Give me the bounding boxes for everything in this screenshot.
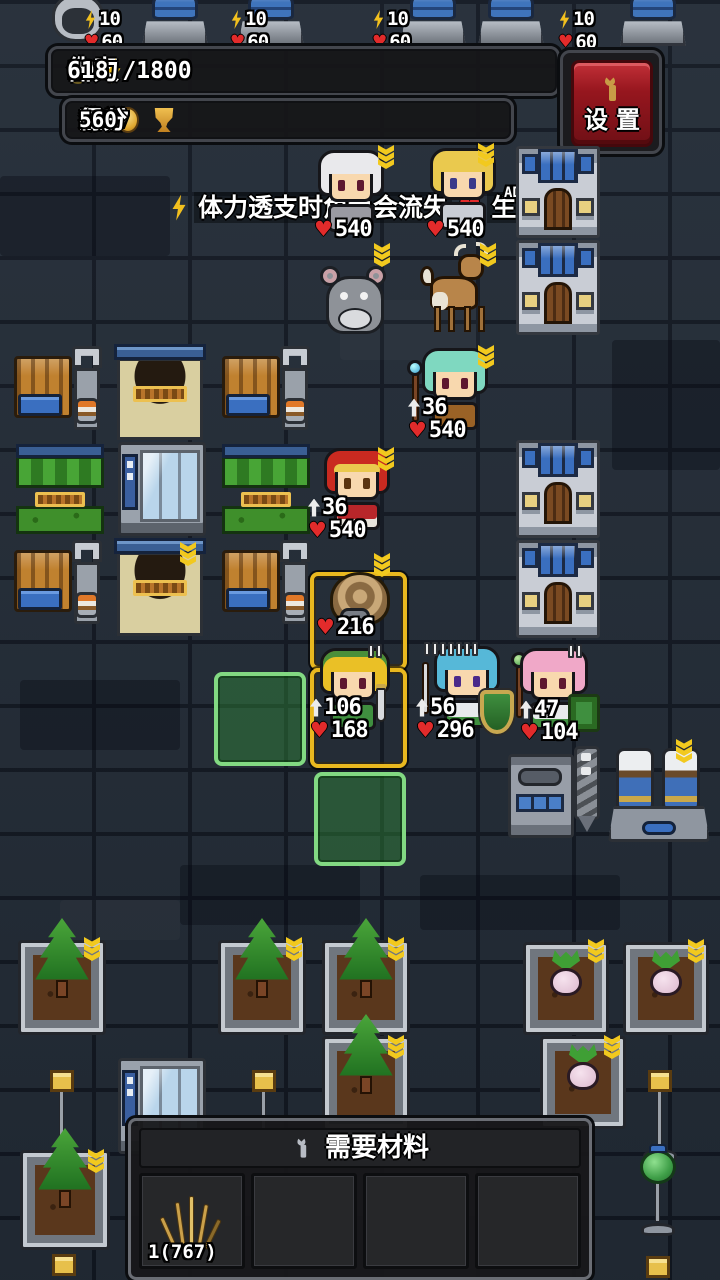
- disc-stack: [283, 398, 307, 424]
- upgrade-chevron-icon: [286, 940, 302, 961]
- trunk: [256, 980, 268, 998]
- leg: [464, 306, 471, 332]
- building-house[interactable]: [516, 440, 600, 538]
- disc-stack: [283, 592, 307, 618]
- brick-light: [60, 900, 180, 940]
- settings-frame: 设置: [560, 50, 662, 154]
- turret-dome: [488, 0, 534, 20]
- attack-icon: [308, 499, 320, 517]
- trunk: [56, 980, 68, 998]
- attack-icon: [416, 699, 428, 717]
- trunk: [360, 980, 372, 998]
- tarp: [18, 588, 62, 610]
- building-house[interactable]: [516, 240, 600, 335]
- claw-machine-head: [72, 346, 102, 368]
- heart-icon: ♥: [316, 617, 335, 638]
- heart-icon: ♥: [426, 219, 445, 240]
- lamp-head: [646, 1256, 670, 1278]
- drill-tip: [578, 816, 596, 832]
- turret-base: [142, 18, 208, 46]
- power-icon: [230, 10, 243, 29]
- settings-button[interactable]: 设置: [571, 60, 653, 147]
- building-house[interactable]: [516, 146, 600, 238]
- wrench-icon: [600, 76, 624, 102]
- door: [544, 482, 572, 524]
- leg: [434, 306, 441, 332]
- building-turret[interactable]: [478, 0, 544, 46]
- tavern-sign: [133, 386, 187, 402]
- arrows-indicator: [424, 642, 478, 656]
- grass-base: [222, 506, 310, 534]
- window: [578, 154, 594, 174]
- upgrade-chevron-icon: [688, 942, 704, 963]
- lit-window: [522, 198, 540, 216]
- grass-base: [16, 506, 104, 534]
- power-icon: [84, 10, 97, 29]
- lamp-head: [252, 1070, 276, 1092]
- tarp: [226, 588, 270, 610]
- lit-window: [576, 292, 594, 310]
- brick-shade: [20, 680, 180, 750]
- lamp-pole: [655, 1178, 660, 1222]
- windows: [516, 794, 564, 812]
- lamp-pole: [657, 1088, 662, 1146]
- tavern-roof: [114, 344, 206, 360]
- material-slot[interactable]: 1(767): [139, 1173, 245, 1269]
- green-lamp-ball: [640, 1150, 676, 1184]
- heart-icon: ♥: [314, 219, 333, 240]
- window: [522, 448, 538, 468]
- lit-window: [576, 198, 594, 216]
- building-green-shop[interactable]: [222, 444, 310, 534]
- roof-bar: [16, 444, 104, 458]
- wrench-icon: [293, 1138, 312, 1159]
- upgrade-chevron-icon: [378, 450, 394, 471]
- lamp-base: [641, 1223, 675, 1236]
- materials-panel-title: 需要材料: [325, 1135, 429, 1161]
- upgrade-chevron-icon: [588, 942, 604, 963]
- heart-icon: ♥: [310, 720, 329, 741]
- face: [441, 172, 485, 200]
- building-chest-shop[interactable]: [222, 346, 312, 438]
- face: [329, 174, 373, 202]
- game-viewport: 10 ♥60 10 ♥60 10 ♥60 10 ♥60 白天 196 / 800…: [0, 0, 720, 1280]
- window: [522, 248, 538, 268]
- score-icon: [153, 108, 175, 132]
- brick-shade: [180, 865, 360, 925]
- tavern-sign: [133, 580, 187, 596]
- building-tavern[interactable]: [114, 344, 206, 440]
- hud-score-bar: 荣誉 322 金币 1277 得分 560: [62, 98, 514, 142]
- heart-icon: ♥: [416, 720, 435, 741]
- upgrade-chevron-icon: [478, 348, 494, 369]
- power-icon: [558, 10, 571, 29]
- stamina-bolt-icon: [170, 195, 188, 221]
- upgrade-chevron-icon: [374, 246, 390, 267]
- unit-stats: 106 ♥168: [310, 696, 368, 742]
- eye: [340, 292, 348, 300]
- claw-machine-head: [280, 540, 310, 562]
- turnip: [650, 968, 682, 996]
- turret-stats: 10 ♥60: [558, 8, 596, 54]
- turnip: [567, 1062, 599, 1090]
- claw-machine-head: [72, 540, 102, 562]
- claw-machine-head: [280, 346, 310, 368]
- hatch: [518, 768, 562, 786]
- unit-stats: ♥540: [314, 218, 372, 241]
- upgrade-chevron-icon: [88, 1152, 104, 1173]
- heart-icon: ♥: [558, 34, 573, 51]
- arrows-indicator: [368, 644, 382, 658]
- trunk: [59, 1190, 71, 1208]
- unit-stats: 36 ♥540: [408, 396, 466, 442]
- attack-icon: [520, 701, 532, 719]
- attack-icon: [408, 399, 420, 417]
- belly: [338, 308, 372, 330]
- upgrade-chevron-icon: [388, 1038, 404, 1059]
- turnip: [550, 968, 582, 996]
- unit-stats: ♥216: [316, 616, 374, 639]
- materials-panel: 需要材料 1(767): [128, 1118, 592, 1280]
- settings-label: 设置: [584, 108, 648, 132]
- placement-tile-green[interactable]: [214, 672, 306, 766]
- building-turret[interactable]: [142, 0, 208, 46]
- machine-base: [608, 806, 710, 842]
- heart-icon: ♥: [520, 722, 539, 743]
- door: [544, 188, 572, 230]
- eye: [360, 292, 368, 300]
- sword: [376, 688, 386, 722]
- hud-resources-bar: 白天 196 / 800 体力 618 /1800: [48, 46, 560, 96]
- window: [522, 548, 538, 568]
- turret-base: [478, 18, 544, 46]
- building-twin-boiler[interactable]: [608, 748, 710, 842]
- building-drill-machine[interactable]: [508, 746, 602, 842]
- building-chest-shop[interactable]: [14, 540, 104, 635]
- brick-shade: [612, 340, 720, 470]
- street-lamp[interactable]: [44, 1254, 84, 1280]
- trunk: [360, 1076, 372, 1094]
- upgrade-chevron-icon: [388, 940, 404, 961]
- lit-window: [522, 492, 540, 510]
- unit-stats: 56 ♥296: [416, 696, 474, 742]
- roof-bar: [222, 444, 310, 458]
- turret-base: [620, 18, 686, 46]
- disc-stack: [75, 592, 99, 618]
- lit-window: [576, 492, 594, 510]
- unit-stats: 47 ♥104: [520, 698, 578, 744]
- building-glass-kiosk[interactable]: [118, 442, 206, 536]
- window: [522, 154, 538, 174]
- window: [578, 548, 594, 568]
- turret-dome: [410, 0, 456, 20]
- upgrade-chevron-icon: [374, 556, 390, 577]
- window: [538, 443, 578, 477]
- material-slot[interactable]: [251, 1173, 357, 1269]
- window: [538, 243, 578, 277]
- power-icon: [372, 10, 385, 29]
- staff-orb: [407, 360, 423, 376]
- lamp-head: [648, 1070, 672, 1092]
- tarp: [18, 394, 62, 416]
- drill-column: [574, 746, 600, 820]
- window: [538, 543, 578, 577]
- arrows-indicator: [568, 644, 582, 658]
- awning: [16, 456, 104, 488]
- building-chest-shop[interactable]: [222, 540, 312, 635]
- boiler-pot: [616, 748, 654, 812]
- material-count: 1(767): [148, 1243, 217, 1262]
- unit-mouse[interactable]: [318, 262, 394, 340]
- placement-tile-green[interactable]: [314, 772, 406, 866]
- heart-icon: ♥: [408, 420, 427, 441]
- window: [538, 149, 578, 183]
- street-lamp-green[interactable]: [632, 1144, 684, 1236]
- street-lamp[interactable]: [638, 1256, 678, 1280]
- brick-shade: [420, 875, 620, 930]
- building-house[interactable]: [516, 540, 600, 638]
- glass: [140, 450, 200, 522]
- lit-window: [576, 592, 594, 610]
- upgrade-chevron-icon: [480, 246, 496, 267]
- door: [544, 282, 572, 324]
- lamp-head: [50, 1070, 74, 1092]
- tarp: [226, 394, 270, 416]
- materials-slot-row: 1(767): [139, 1173, 581, 1269]
- heart-icon: ♥: [308, 520, 327, 541]
- turret-dome: [152, 0, 198, 20]
- unit-stats: ♥540: [426, 218, 484, 241]
- building-green-shop[interactable]: [16, 444, 104, 534]
- score-value: 560: [79, 110, 117, 131]
- skull-mark: [581, 753, 591, 761]
- window: [578, 448, 594, 468]
- awning: [222, 456, 310, 488]
- upgrade-chevron-icon: [84, 940, 100, 961]
- lamp-cap: [649, 1144, 667, 1153]
- lit-window: [522, 292, 540, 310]
- blue-oval: [642, 821, 676, 835]
- material-slot[interactable]: [363, 1173, 469, 1269]
- control-panel: [122, 454, 138, 510]
- lamp-head: [52, 1254, 76, 1276]
- building-turret[interactable]: [620, 0, 686, 46]
- skull-mark: [581, 767, 591, 775]
- upgrade-chevron-icon: [604, 1038, 620, 1059]
- upgrade-chevron-icon: [478, 146, 494, 167]
- disc-stack: [75, 398, 99, 424]
- shop-sign: [35, 492, 85, 507]
- brick-shade: [0, 176, 170, 256]
- shield: [480, 690, 514, 734]
- material-slot[interactable]: [475, 1173, 581, 1269]
- turret-dome: [630, 0, 676, 20]
- window: [578, 248, 594, 268]
- shop-sign: [241, 492, 291, 507]
- building-chest-shop[interactable]: [14, 346, 104, 438]
- attack-icon: [310, 699, 322, 717]
- stamina-value: 618 /1800: [67, 60, 192, 83]
- upgrade-chevron-icon: [676, 742, 692, 763]
- unit-stats: 36 ♥540: [308, 496, 366, 542]
- leg: [448, 306, 455, 332]
- leg: [478, 306, 485, 332]
- materials-panel-header: 需要材料: [139, 1128, 581, 1168]
- lit-window: [522, 592, 540, 610]
- door: [544, 582, 572, 624]
- upgrade-chevron-icon: [180, 545, 196, 566]
- upgrade-chevron-icon: [378, 148, 394, 169]
